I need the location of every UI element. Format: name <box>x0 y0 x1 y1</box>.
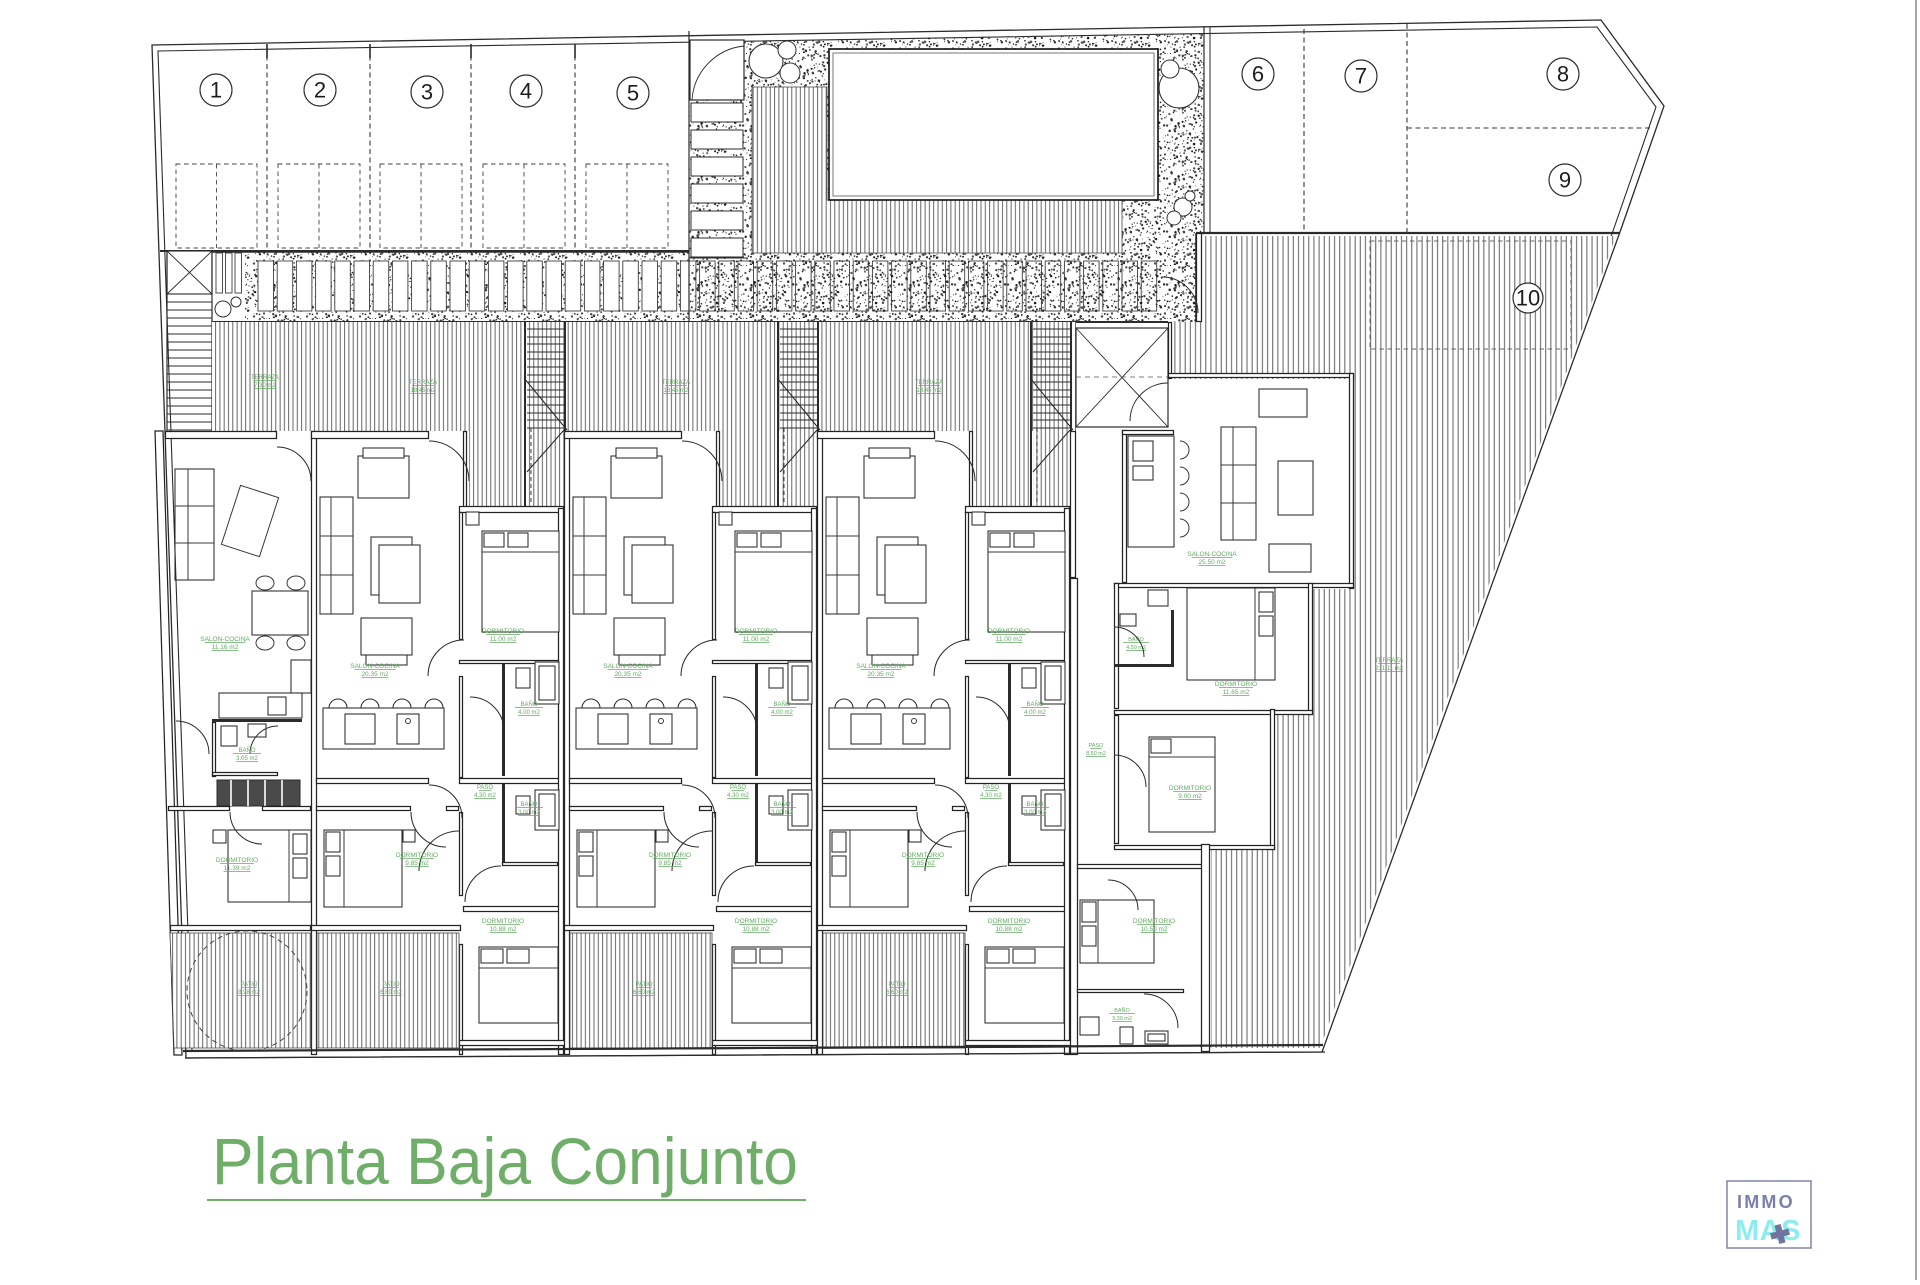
svg-text:6.60 m2: 6.60 m2 <box>633 990 655 996</box>
svg-text:6.60 m2: 6.60 m2 <box>886 990 908 996</box>
svg-text:BAÑO: BAÑO <box>520 801 537 808</box>
svg-text:TERRAZA: TERRAZA <box>662 380 690 386</box>
svg-text:SALON-COCINA: SALON-COCINA <box>200 636 250 643</box>
svg-text:4.30 m2: 4.30 m2 <box>474 793 496 799</box>
svg-text:7: 7 <box>1355 64 1367 89</box>
svg-text:TERRAZA: TERRAZA <box>409 380 437 386</box>
svg-text:3.00 m2: 3.00 m2 <box>1024 810 1046 816</box>
svg-text:PASO: PASO <box>1089 743 1105 749</box>
svg-text:10.50 m2: 10.50 m2 <box>1140 926 1167 933</box>
svg-text:PATIO: PATIO <box>635 982 652 988</box>
svg-text:PASO: PASO <box>983 785 1000 791</box>
svg-text:3.30 m2: 3.30 m2 <box>1112 1016 1132 1022</box>
svg-text:8: 8 <box>1557 62 1569 87</box>
svg-text:11.65 m2: 11.65 m2 <box>1223 689 1250 696</box>
svg-text:PATIO: PATIO <box>382 982 399 988</box>
svg-text:3: 3 <box>421 80 433 105</box>
svg-text:BAÑO: BAÑO <box>1026 801 1043 808</box>
svg-text:TERRAZA: TERRAZA <box>251 375 279 381</box>
svg-text:9.00 m2: 9.00 m2 <box>1178 793 1202 800</box>
svg-text:10.88 m2: 10.88 m2 <box>995 926 1022 933</box>
svg-text:4.30 m2: 4.30 m2 <box>980 793 1002 799</box>
svg-text:6.60 m2: 6.60 m2 <box>380 990 402 996</box>
svg-text:3.05 m2: 3.05 m2 <box>236 756 258 762</box>
svg-text:SALON-COCINA: SALON-COCINA <box>350 663 400 670</box>
svg-text:231.11 m2: 231.11 m2 <box>1375 666 1404 672</box>
svg-text:18.45 m2: 18.45 m2 <box>410 388 436 394</box>
svg-text:DORMITORIO: DORMITORIO <box>988 918 1030 925</box>
svg-text:PATIO: PATIO <box>240 982 257 988</box>
svg-text:10.88 m2: 10.88 m2 <box>742 926 769 933</box>
svg-text:4.00 m2: 4.00 m2 <box>771 710 793 716</box>
svg-text:BAÑO: BAÑO <box>773 801 790 808</box>
svg-text:DORMITORIO: DORMITORIO <box>735 918 777 925</box>
svg-text:9.85 m2: 9.85 m2 <box>911 860 935 867</box>
svg-text:TERRAZA: TERRAZA <box>915 380 943 386</box>
svg-text:DORMITORIO: DORMITORIO <box>1215 681 1257 688</box>
svg-text:18.45 m2: 18.45 m2 <box>916 388 942 394</box>
svg-text:DORMITORIO: DORMITORIO <box>902 852 944 859</box>
svg-text:MAS: MAS <box>1735 1215 1801 1247</box>
svg-text:BAÑO: BAÑO <box>773 701 790 708</box>
svg-text:3.00 m2: 3.00 m2 <box>771 810 793 816</box>
svg-text:DORMITORIO: DORMITORIO <box>482 918 524 925</box>
svg-text:4: 4 <box>520 79 532 104</box>
svg-text:DORMITORIO: DORMITORIO <box>988 628 1030 635</box>
svg-text:25.50 m2: 25.50 m2 <box>1198 559 1225 566</box>
svg-text:TERRAZA: TERRAZA <box>1375 658 1403 664</box>
svg-text:PASO: PASO <box>477 785 494 791</box>
svg-text:PASO: PASO <box>730 785 747 791</box>
svg-text:IMMO: IMMO <box>1737 1192 1795 1212</box>
svg-text:3.00 m2: 3.00 m2 <box>518 810 540 816</box>
svg-text:DORMITORIO: DORMITORIO <box>1133 918 1175 925</box>
svg-text:1: 1 <box>210 78 222 103</box>
svg-text:BAÑO: BAÑO <box>520 701 537 708</box>
svg-text:SALON-COCINA: SALON-COCINA <box>1187 551 1237 558</box>
svg-text:11.39 m2: 11.39 m2 <box>224 865 251 872</box>
svg-text:11.00 m2: 11.00 m2 <box>490 636 517 643</box>
svg-text:BAÑO: BAÑO <box>1026 701 1043 708</box>
svg-text:4.30 m2: 4.30 m2 <box>727 793 749 799</box>
svg-text:BAÑO: BAÑO <box>238 747 255 754</box>
svg-text:DORMITORIO: DORMITORIO <box>482 628 524 635</box>
svg-text:4.00 m2: 4.00 m2 <box>1024 710 1046 716</box>
svg-text:11.00 m2: 11.00 m2 <box>996 636 1023 643</box>
svg-text:6: 6 <box>1252 62 1264 87</box>
svg-text:5: 5 <box>627 81 639 106</box>
svg-text:2: 2 <box>314 78 326 103</box>
svg-text:4.00 m2: 4.00 m2 <box>518 710 540 716</box>
svg-text:20.35 m2: 20.35 m2 <box>614 671 641 678</box>
svg-text:20.35 m2: 20.35 m2 <box>361 671 388 678</box>
svg-text:10.88 m2: 10.88 m2 <box>489 926 516 933</box>
svg-text:DORMITORIO: DORMITORIO <box>735 628 777 635</box>
svg-text:10: 10 <box>1516 286 1540 311</box>
svg-text:SALON-COCINA: SALON-COCINA <box>603 663 653 670</box>
svg-text:PATIO: PATIO <box>888 982 905 988</box>
svg-text:20.35 m2: 20.35 m2 <box>867 671 894 678</box>
svg-text:8.98 m2: 8.98 m2 <box>238 990 260 996</box>
svg-text:BAÑO: BAÑO <box>1114 1007 1130 1014</box>
svg-text:11.16 m2: 11.16 m2 <box>212 644 239 651</box>
svg-text:18.45 m2: 18.45 m2 <box>663 388 689 394</box>
svg-text:DORMITORIO: DORMITORIO <box>396 852 438 859</box>
svg-text:Planta Baja Conjunto: Planta Baja Conjunto <box>212 1124 798 1198</box>
svg-text:9.85 m2: 9.85 m2 <box>405 860 429 867</box>
svg-text:DORMITORIO: DORMITORIO <box>216 857 258 864</box>
svg-text:SALON-COCINA: SALON-COCINA <box>856 663 906 670</box>
svg-text:7.30 m2: 7.30 m2 <box>254 383 276 389</box>
svg-text:DORMITORIO: DORMITORIO <box>649 852 691 859</box>
svg-text:9: 9 <box>1559 168 1571 193</box>
svg-text:8.50 m2: 8.50 m2 <box>1086 751 1106 757</box>
svg-text:9.85 m2: 9.85 m2 <box>658 860 682 867</box>
svg-text:DORMITORIO: DORMITORIO <box>1169 785 1211 792</box>
svg-text:11.00 m2: 11.00 m2 <box>743 636 770 643</box>
